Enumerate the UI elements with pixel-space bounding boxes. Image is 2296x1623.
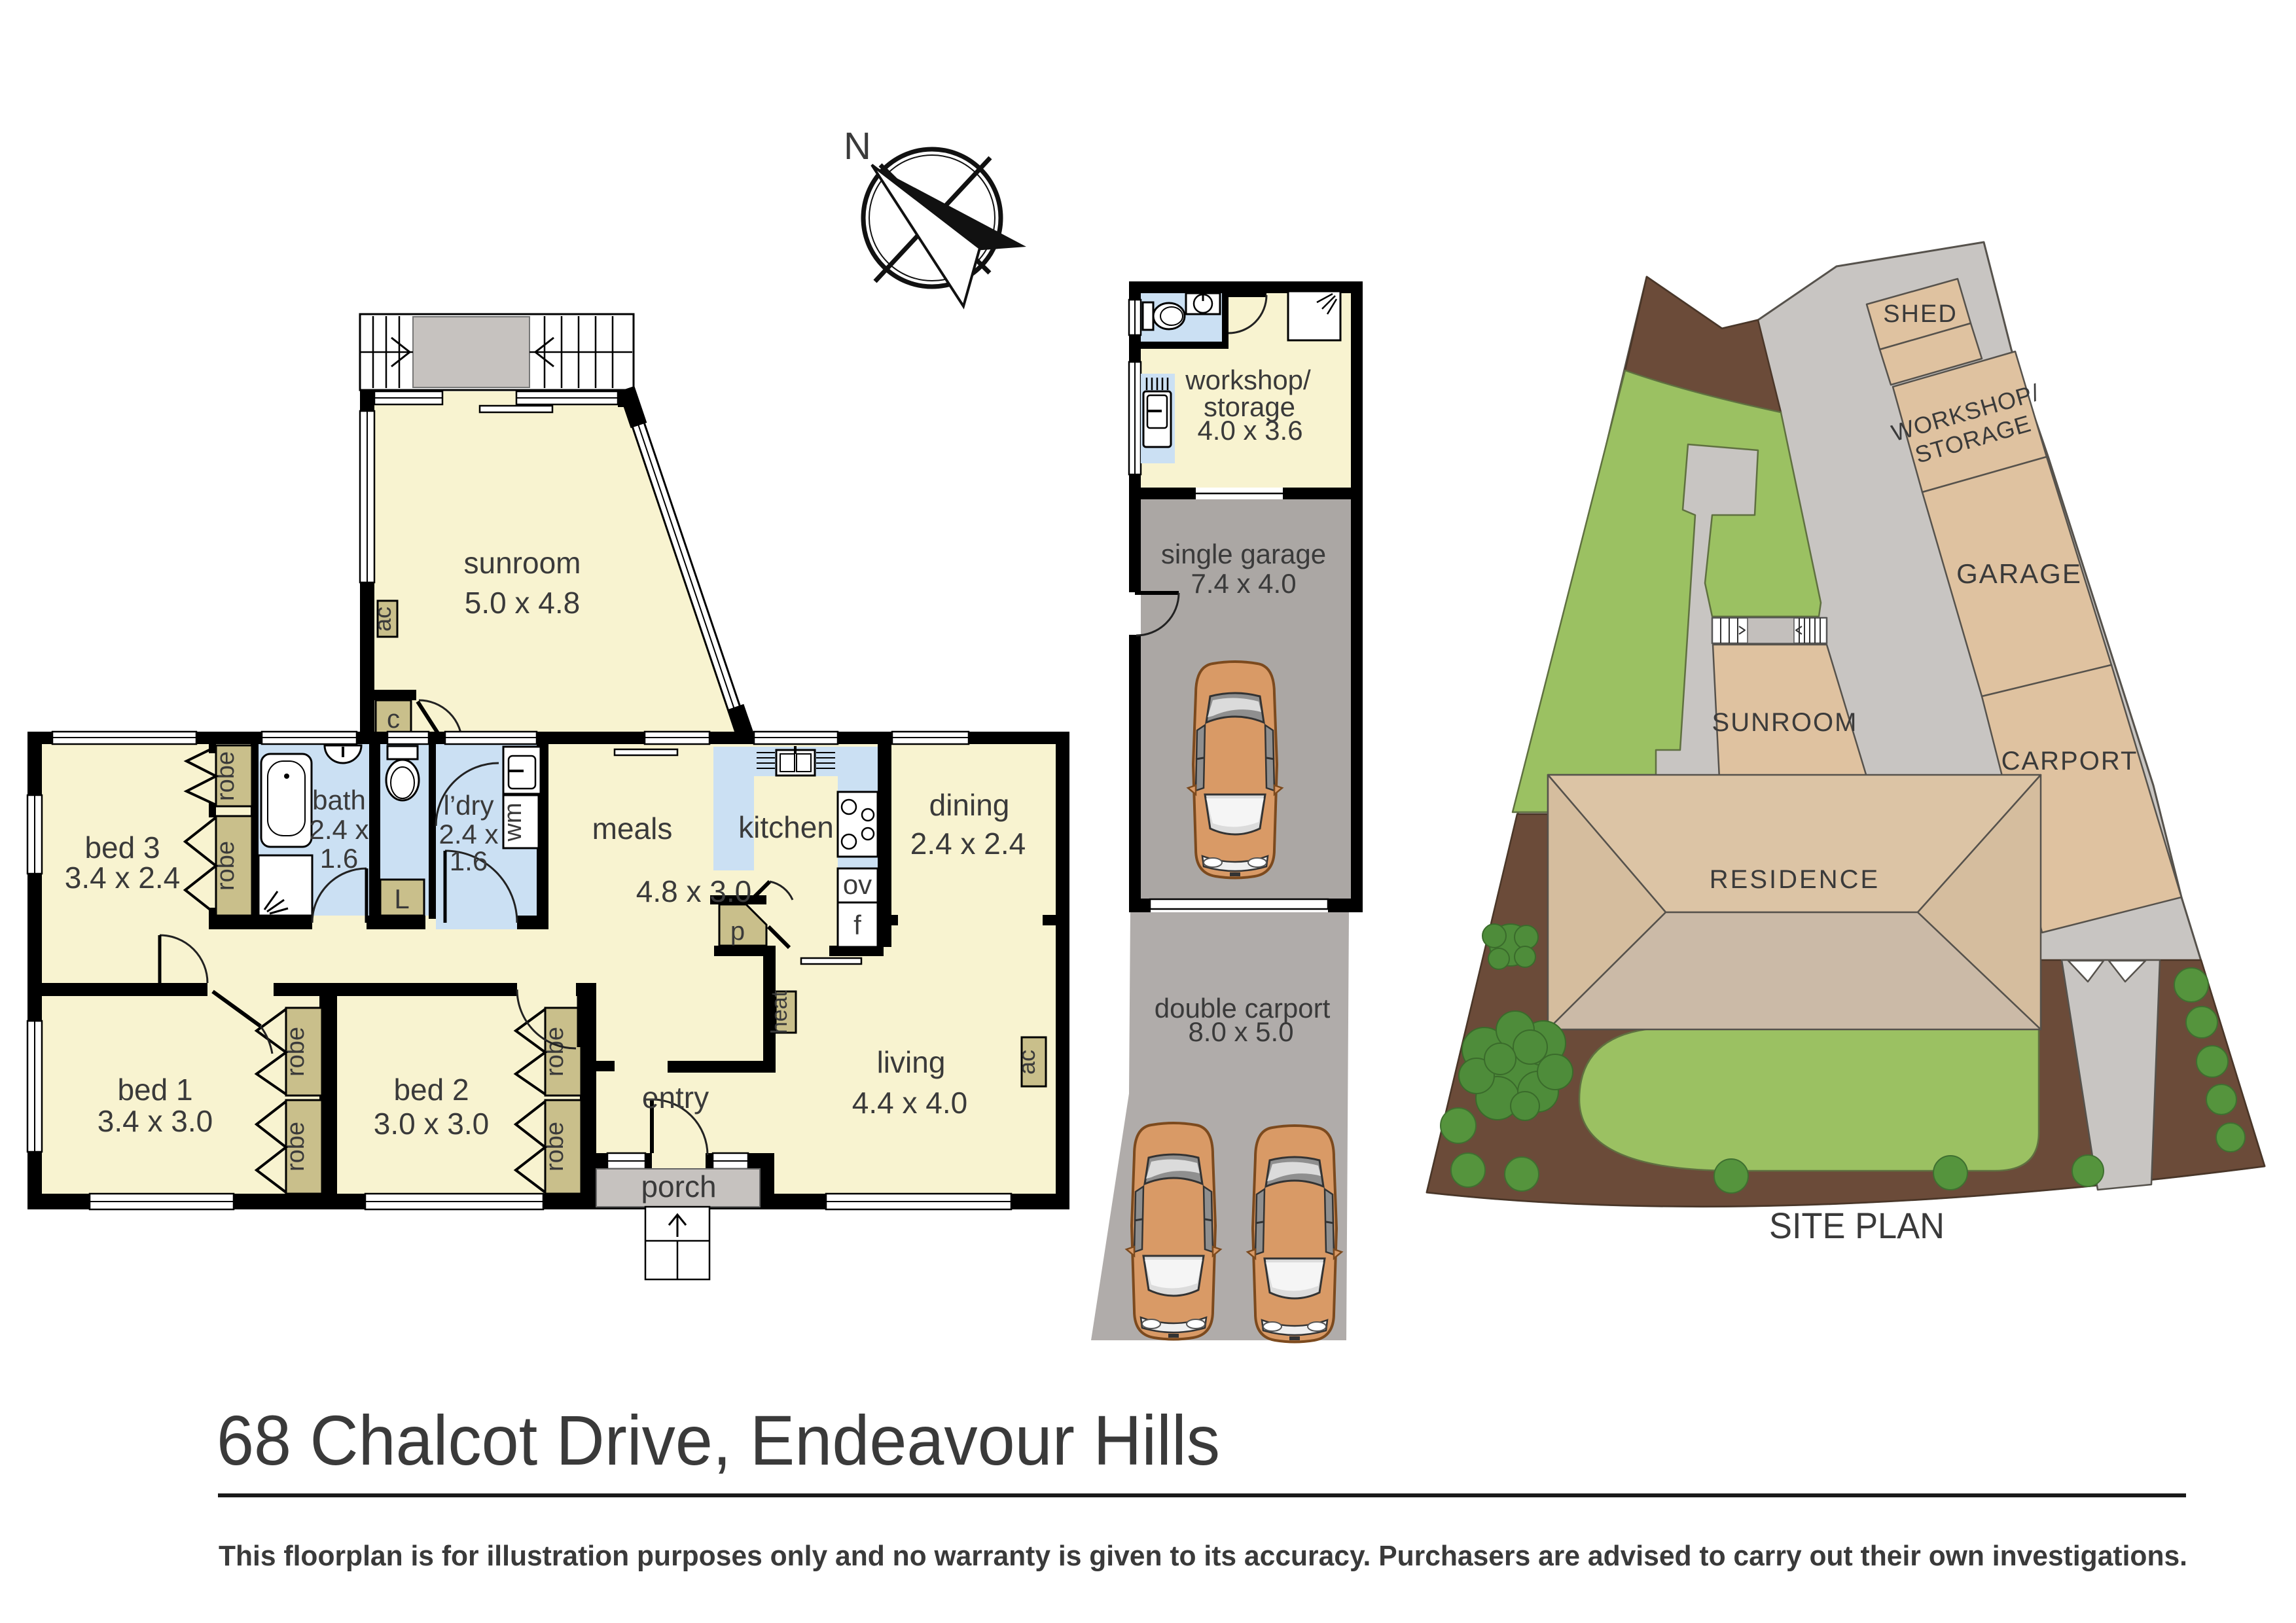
svg-text:L: L: [394, 883, 409, 914]
svg-text:3.4 x 3.0: 3.4 x 3.0: [98, 1104, 213, 1138]
svg-text:c: c: [387, 705, 400, 734]
svg-text:3.4 x 2.4: 3.4 x 2.4: [65, 861, 180, 895]
svg-text:3.0 x 3.0: 3.0 x 3.0: [374, 1107, 489, 1141]
svg-text:SITE PLAN: SITE PLAN: [1769, 1205, 1945, 1246]
svg-text:8.0 x 5.0: 8.0 x 5.0: [1188, 1016, 1293, 1047]
svg-text:CARPORT: CARPORT: [2001, 747, 2138, 776]
svg-text:2.4 x: 2.4 x: [309, 814, 368, 845]
svg-text:entry: entry: [642, 1080, 709, 1115]
svg-text:N: N: [844, 125, 871, 168]
svg-text:porch: porch: [641, 1169, 716, 1204]
svg-text:7.4 x 4.0: 7.4 x 4.0: [1191, 568, 1296, 599]
svg-text:wm: wm: [499, 802, 527, 842]
svg-text:SHED: SHED: [1883, 300, 1958, 328]
svg-text:kitchen: kitchen: [738, 810, 834, 844]
svg-text:68 Chalcot Drive, Endeavour Hi: 68 Chalcot Drive, Endeavour Hills: [217, 1400, 1220, 1480]
svg-text:workshop/: workshop/: [1185, 365, 1311, 395]
svg-text:5.0 x 4.8: 5.0 x 4.8: [465, 586, 580, 620]
svg-text:heat: heat: [767, 990, 792, 1034]
svg-text:1.6: 1.6: [320, 843, 358, 874]
svg-text:2.4 x 2.4: 2.4 x 2.4: [910, 827, 1026, 861]
svg-text:SUNROOM: SUNROOM: [1712, 708, 1858, 737]
svg-text:dining: dining: [929, 788, 1010, 822]
svg-text:bed 3: bed 3: [84, 830, 160, 865]
svg-text:l’dry: l’dry: [443, 790, 493, 821]
svg-text:4.8 x 3.0: 4.8 x 3.0: [636, 874, 751, 908]
svg-text:bed 2: bed 2: [393, 1073, 469, 1107]
svg-text:f: f: [853, 910, 861, 940]
svg-text:p: p: [730, 917, 745, 946]
svg-text:meals: meals: [592, 811, 673, 846]
svg-text:single garage: single garage: [1161, 539, 1326, 569]
svg-text:2.4 x: 2.4 x: [439, 819, 498, 849]
svg-text:ac: ac: [1013, 1050, 1040, 1075]
svg-text:ac: ac: [369, 607, 396, 632]
svg-text:living: living: [877, 1045, 946, 1079]
svg-text:4.4 x 4.0: 4.4 x 4.0: [852, 1086, 967, 1120]
svg-text:ov: ov: [843, 869, 872, 900]
svg-text:1.6: 1.6: [450, 846, 488, 876]
svg-text:RESIDENCE: RESIDENCE: [1710, 865, 1880, 894]
svg-text:GARAGE: GARAGE: [1956, 558, 2082, 589]
svg-text:This floorplan is for illustra: This floorplan is for illustration purpo…: [219, 1540, 2187, 1572]
svg-text:4.0 x 3.6: 4.0 x 3.6: [1197, 415, 1302, 446]
svg-text:bath: bath: [312, 785, 366, 815]
svg-text:sunroom: sunroom: [464, 546, 581, 580]
svg-text:bed 1: bed 1: [117, 1073, 192, 1107]
